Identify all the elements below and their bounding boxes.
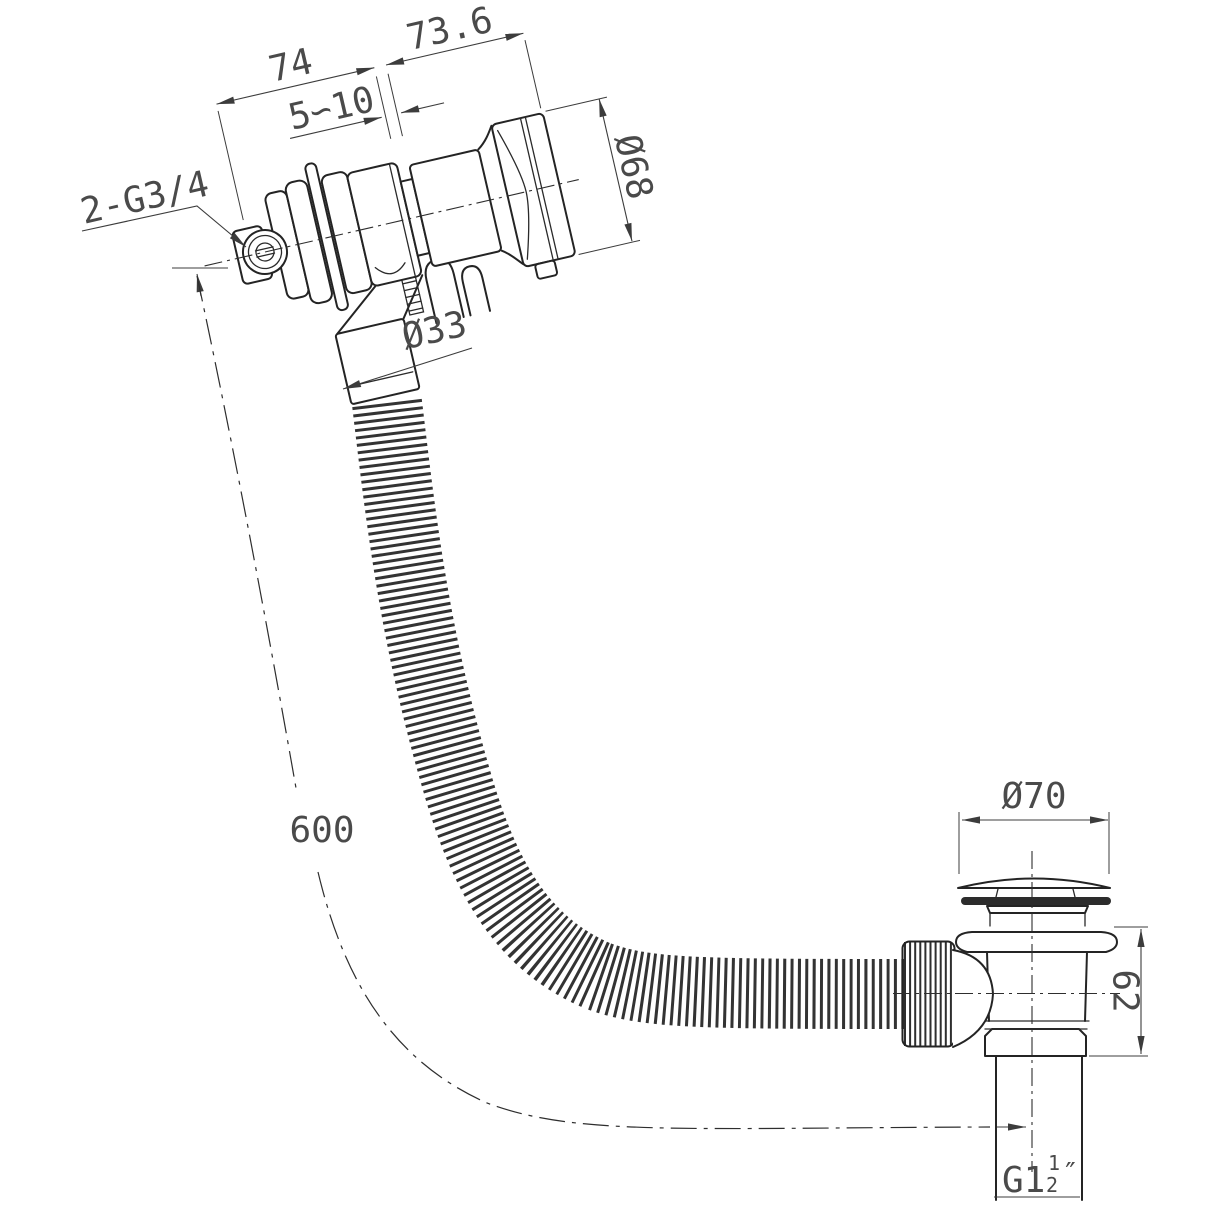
dim-600-label: 600: [289, 810, 354, 851]
dim-o70-label: Ø70: [1001, 776, 1066, 817]
waste-flange: [956, 932, 1117, 952]
tail-thread-denominator: 2: [1046, 1173, 1058, 1197]
waste-washer: [961, 897, 1111, 905]
head-tab: [535, 260, 558, 279]
technical-drawing-canvas: 600: [0, 0, 1224, 1224]
tail-thread-prefix: G1: [1002, 1160, 1045, 1201]
tail-thread-unit: ″: [1062, 1156, 1079, 1189]
dim-62-label: 62: [1104, 969, 1145, 1012]
tail-thread-numerator: 1: [1048, 1151, 1060, 1175]
